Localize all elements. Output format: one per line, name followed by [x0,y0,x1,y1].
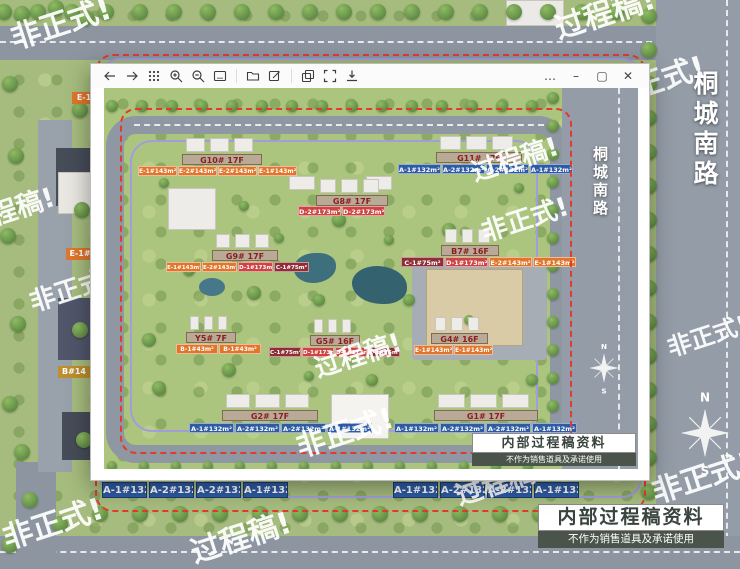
tree-icon [0,4,12,20]
zoomed-site-plan: 桐城南路 N S 内部过程稿资料 不作为销售道具及承诺使用 G10# 17FE-… [104,88,638,469]
road-centerline [0,41,662,43]
tree-icon [171,461,181,469]
tree-icon [574,4,590,20]
compass-north-label: N [700,391,710,405]
tree-icon [2,537,18,553]
tree-icon [48,0,64,16]
minimize-button[interactable]: – [563,66,589,86]
zoom-in-icon [169,69,183,83]
road-centerline [726,0,728,569]
disclaimer-box-inner: 内部过程稿资料 不作为销售道具及承诺使用 [472,433,636,466]
grid-view-button[interactable] [143,66,165,86]
more-options-button[interactable]: … [537,66,563,86]
folder-icon [246,69,260,83]
back-button[interactable] [99,66,121,86]
tree-icon [641,42,657,58]
road-label-tongcheng-south-inner: 桐城南路 [590,146,611,218]
unit-area-label-large: A-1#132m² [534,482,579,498]
grid-view-icon [147,69,161,83]
tree-icon [72,102,88,118]
disclaimer-subtitle: 不作为销售道具及承诺使用 [472,453,636,466]
copy-icon [301,69,315,83]
tree-icon [540,4,556,20]
tree-icon [107,461,117,469]
tree-icon [52,516,68,532]
tree-icon [331,461,341,469]
slideshow-button[interactable] [209,66,231,86]
disclaimer-box-outer: 内部过程稿资料 不作为销售道具及承诺使用 [538,504,724,548]
tree-icon [234,4,250,20]
tree-icon [166,4,182,20]
save-icon [345,69,359,83]
compass-south-label: S [601,386,606,395]
tree-icon [404,4,420,20]
tree-icon [641,8,657,24]
forward-icon [125,69,139,83]
disclaimer-title: 内部过程稿资料 [472,433,636,453]
tree-icon [506,4,522,20]
compass-icon: N S [584,340,624,396]
tree-icon [30,4,46,20]
unit-area-label-large: A-1#132m² [393,482,438,498]
tree-icon [0,228,16,244]
site-boundary-dashed [120,108,572,454]
tree-icon [395,461,405,469]
tree-icon [200,4,216,20]
copy-button[interactable] [297,66,319,86]
tree-icon [370,4,386,20]
zoom-out-button[interactable] [187,66,209,86]
unit-area-label-large: A-1#132m² [102,482,147,498]
tree-icon [74,202,90,218]
forward-button[interactable] [121,66,143,86]
unit-area-label-large: A-2#132m² [196,482,241,498]
edit-button[interactable] [264,66,286,86]
tree-icon [547,92,559,104]
tree-icon [22,492,38,508]
compass-south-label: S [701,464,710,478]
tree-icon [438,4,454,20]
site-plan-screenshot: 桐城南路 N S 内部过程稿资料 不作为销售道具及承诺使用 A-1#132m²A… [0,0,740,569]
tree-icon [98,4,114,20]
viewer-toolbar: … – ▢ ✕ [91,64,649,88]
road-centerline [618,88,620,469]
window-controls: … – ▢ ✕ [537,66,641,86]
tree-icon [459,461,469,469]
road [16,462,56,569]
tree-icon [2,76,18,92]
toolbar-divider [291,69,292,83]
zoom-in-button[interactable] [165,66,187,86]
edit-icon [268,69,282,83]
close-button[interactable]: ✕ [615,66,641,86]
tree-icon [267,461,277,469]
back-icon [103,69,117,83]
tree-icon [336,4,352,20]
tree-icon [78,10,94,26]
unit-area-label-large: A-2#132m² [487,482,532,498]
tree-icon [132,4,148,20]
unit-area-label-large: A-1#132m² [243,482,288,498]
save-button[interactable] [341,66,363,86]
unit-area-label-large: A-2#132m² [149,482,194,498]
unit-area-label-large: A-2#132m² [440,482,485,498]
tree-icon [268,4,284,20]
maximize-button[interactable]: ▢ [589,66,615,86]
tree-icon [139,461,149,469]
tree-icon [8,148,24,164]
compass-icon: N S [672,388,738,478]
tree-icon [106,100,118,112]
road-label-tongcheng-south-outer: 桐城南路 [686,70,722,190]
disclaimer-subtitle: 不作为销售道具及承诺使用 [538,531,724,548]
toolbar-divider [236,69,237,83]
image-viewer-window: … – ▢ ✕ [90,63,650,481]
road-centerline [0,551,740,553]
tree-icon [299,461,309,469]
compass-north-label: N [601,342,607,351]
viewer-canvas: 桐城南路 N S 内部过程稿资料 不作为销售道具及承诺使用 G10# 17FE-… [104,88,638,469]
unit-area-label-fragment: B#14 [58,366,90,378]
folder-button[interactable] [242,66,264,86]
tree-icon [203,461,213,469]
tree-icon [363,461,373,469]
tree-icon [302,4,318,20]
slideshow-icon [213,69,227,83]
tree-icon [608,4,624,20]
tree-icon [2,396,18,412]
tree-icon [472,4,488,20]
tree-icon [235,461,245,469]
disclaimer-title: 内部过程稿资料 [538,504,724,531]
zoom-out-icon [191,69,205,83]
tree-icon [14,6,30,22]
tree-icon [427,461,437,469]
fullscreen-button[interactable] [319,66,341,86]
tree-icon [10,316,26,332]
tree-icon [14,444,30,460]
tree-icon [72,322,88,338]
fullscreen-icon [323,69,337,83]
